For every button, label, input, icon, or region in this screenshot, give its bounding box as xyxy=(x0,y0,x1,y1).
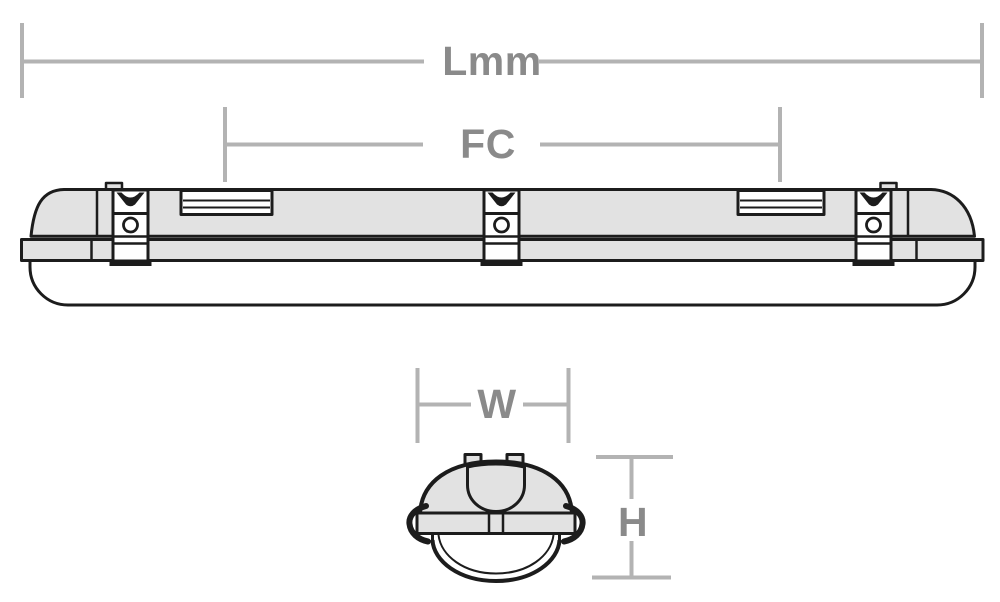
gear-cover xyxy=(468,464,525,512)
width-dimension: W xyxy=(418,368,569,443)
vent-slot-left xyxy=(181,191,272,215)
height-label: H xyxy=(618,499,648,545)
diffuser-bowl-inner xyxy=(439,535,554,574)
fixing-centres-label: FC xyxy=(460,121,516,167)
fixing-centres-dimension: FC xyxy=(225,107,780,182)
mounting-clip-right xyxy=(853,190,895,266)
vent-slot-right xyxy=(738,191,824,215)
length-label: Lmm xyxy=(442,38,541,84)
vent-frame xyxy=(738,191,824,215)
width-label: W xyxy=(477,381,516,427)
mounting-clip-center xyxy=(481,190,523,266)
mounting-band xyxy=(417,513,575,534)
vent-frame xyxy=(181,191,272,215)
dimension-drawing: Lmm FC xyxy=(0,0,1000,602)
length-dimension: Lmm xyxy=(22,23,982,98)
end-view xyxy=(409,455,582,582)
drawing-canvas: Lmm FC xyxy=(0,0,1000,602)
mounting-clip-left xyxy=(110,190,152,266)
side-view xyxy=(22,183,984,305)
diffuser-bowl xyxy=(433,540,560,581)
height-dimension: H xyxy=(592,457,673,578)
